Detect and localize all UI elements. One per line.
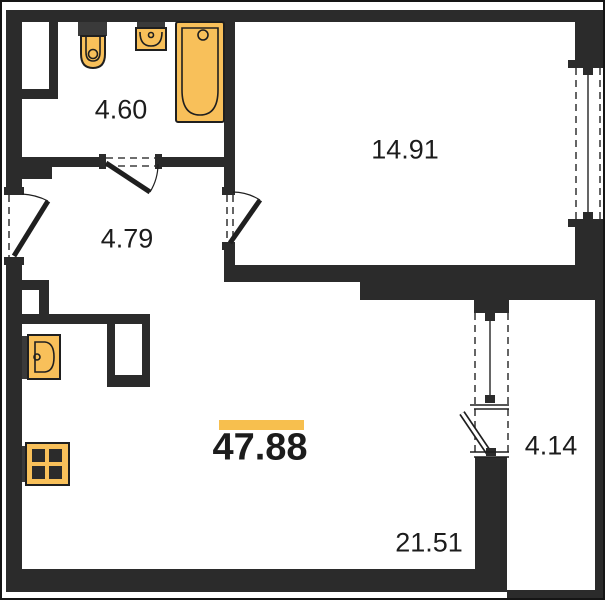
balcony-door-window bbox=[462, 300, 509, 457]
bathroom-door bbox=[99, 154, 162, 192]
entrance-door bbox=[4, 187, 48, 265]
toilet bbox=[78, 22, 107, 68]
area-label-room: 14.91 bbox=[371, 135, 439, 166]
window bbox=[568, 60, 603, 227]
area-label-hallway: 4.79 bbox=[101, 224, 154, 255]
stove bbox=[22, 443, 69, 485]
bathtub bbox=[176, 22, 224, 122]
plan-symbols bbox=[2, 2, 603, 598]
kitchen-sink bbox=[22, 335, 60, 379]
room-door bbox=[222, 187, 260, 250]
floor-plan: 4.60 14.91 4.79 21.51 4.14 47.88 bbox=[0, 0, 605, 600]
area-label-balcony: 4.14 bbox=[525, 431, 578, 462]
area-label-living: 21.51 bbox=[395, 528, 463, 559]
area-label-bathroom: 4.60 bbox=[95, 95, 148, 126]
bathroom-sink bbox=[136, 22, 166, 50]
total-area-label: 47.88 bbox=[212, 427, 307, 470]
